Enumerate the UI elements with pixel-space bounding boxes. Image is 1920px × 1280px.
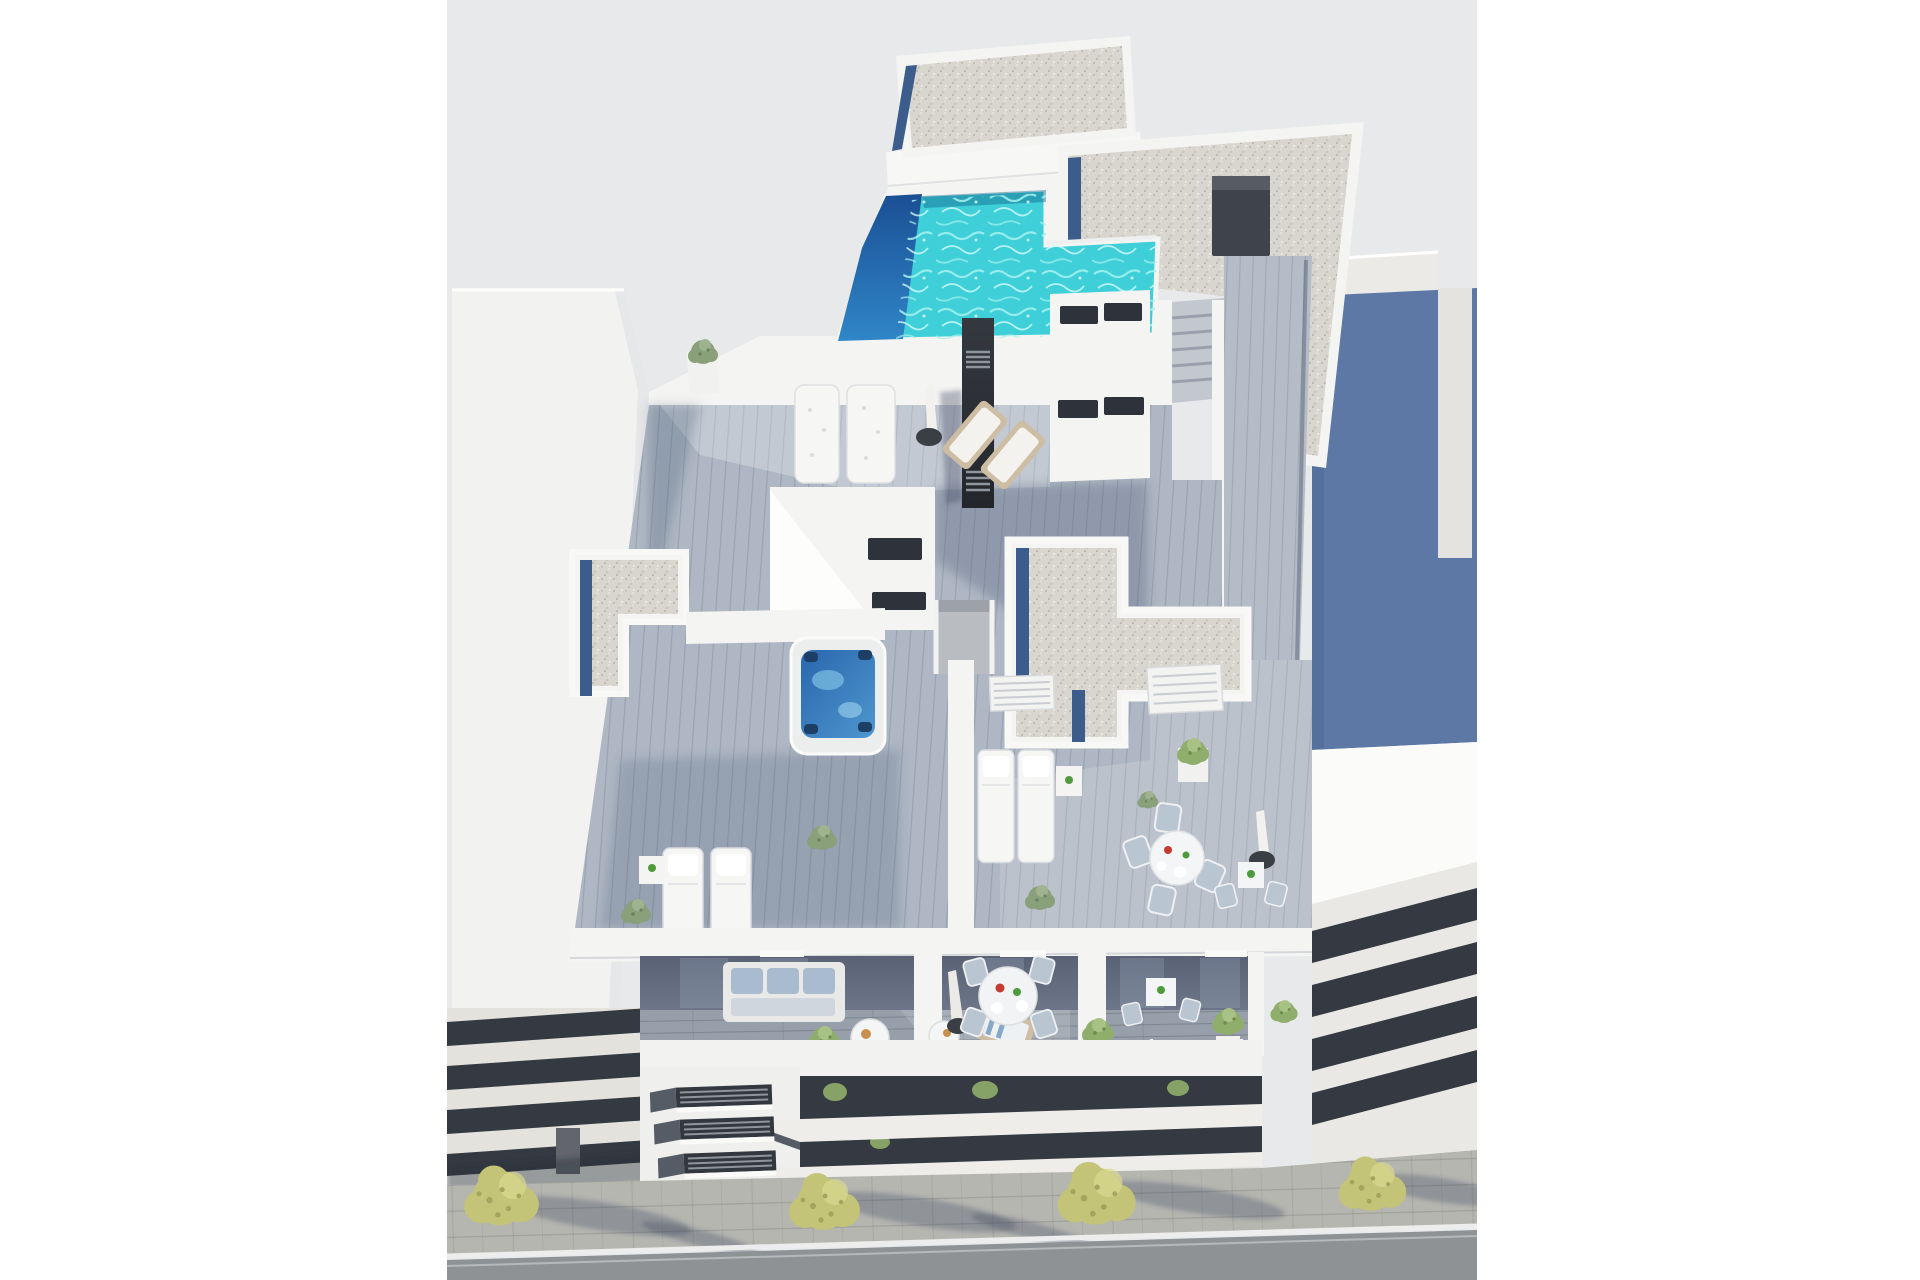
jacuzzi [791, 638, 885, 754]
wood-walkway [1212, 256, 1312, 660]
scene-render [0, 0, 1920, 1280]
daybed [795, 385, 839, 483]
balcony-downlight [1205, 950, 1247, 957]
neighbor-building-right [1312, 250, 1477, 1190]
daybed [847, 385, 895, 483]
louver-window [650, 1084, 777, 1179]
louver-panel [989, 675, 1054, 711]
stair-bulkhead-right [1050, 290, 1150, 482]
stair-bulkhead-center [770, 487, 935, 630]
scene [447, 0, 1511, 1280]
dining-table [979, 967, 1037, 1025]
balcony-downlight [760, 950, 804, 957]
louver-panel [1147, 664, 1223, 714]
terrace-divider-wall [948, 660, 974, 928]
render-viewport [0, 0, 1920, 1280]
